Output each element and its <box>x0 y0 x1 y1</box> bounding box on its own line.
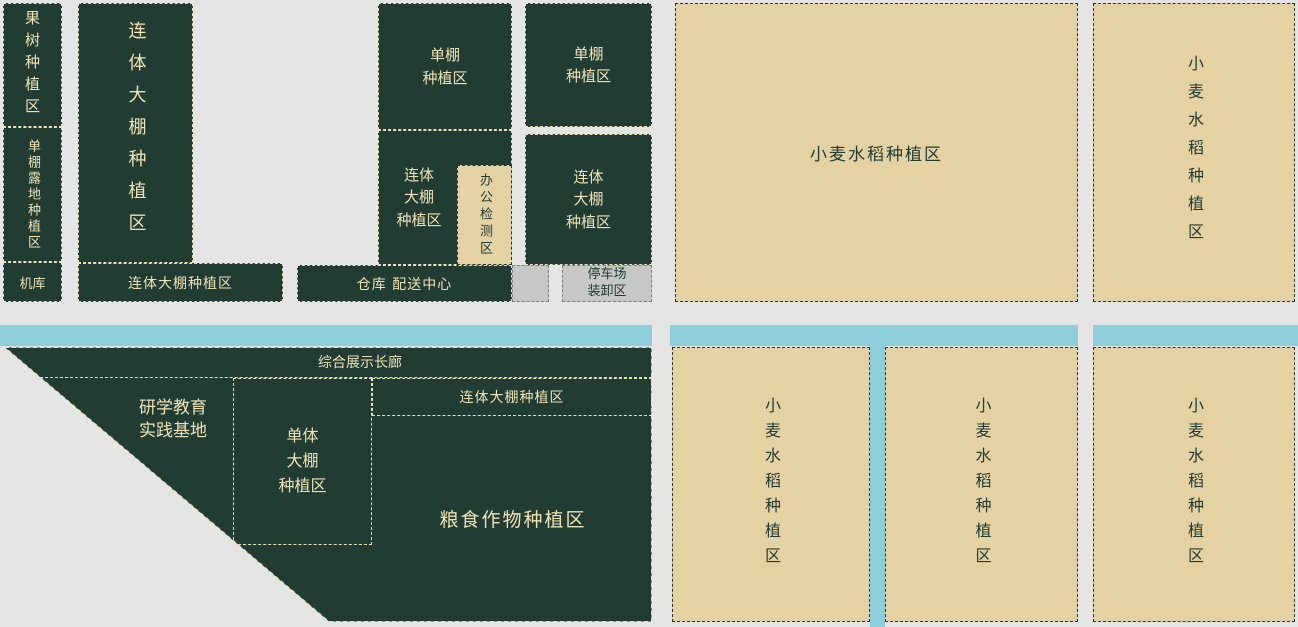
blue-road-strip-west <box>0 325 652 346</box>
zone-wheat-rice-south-1: 小麦水稻种植区 <box>672 347 870 622</box>
zone-single-greenhouse: 单体 大棚 种植区 <box>233 378 372 545</box>
zone-edu-practice-base: 研学教育 实践基地 <box>98 393 248 447</box>
zone-joint-greenhouse-south: 连体大棚种植区 <box>372 378 652 416</box>
site-plan: 果树种植区 单棚露地种植区 机库 连体大棚种植区 连体大棚种植区 单棚 种植区 … <box>0 0 1298 627</box>
zone-exhibition-corridor: 综合展示长廊 <box>288 352 432 372</box>
blue-road-strip-east <box>1093 325 1298 346</box>
zone-wheat-rice-south-2: 小麦水稻种植区 <box>885 347 1078 622</box>
zone-hangar: 机库 <box>3 262 62 302</box>
zone-orchard-planting: 果树种植区 <box>3 3 62 127</box>
zone-wheat-rice-northeast: 小麦水稻种植区 <box>1093 3 1295 302</box>
zone-grain-crops: 粮食作物种植区 <box>393 503 633 533</box>
zone-service-pad <box>512 265 549 302</box>
zone-joint-greenhouse-right: 连体 大棚 种植区 <box>525 134 652 265</box>
zone-single-shed-mid: 单棚 种植区 <box>378 3 512 130</box>
zone-joint-greenhouse-strip: 连体大棚种植区 <box>78 263 283 302</box>
zone-parking-unloading: 停车场 装卸区 <box>562 265 652 302</box>
blue-road-strip-middle <box>670 325 1078 346</box>
zone-single-shed-open-field: 单棚露地种植区 <box>3 127 62 262</box>
zone-wheat-rice-large: 小麦水稻种植区 <box>675 3 1078 302</box>
zone-office-inspection: 办公检测区 <box>457 165 512 265</box>
zone-joint-greenhouse-tall: 连体大棚种植区 <box>78 3 193 263</box>
zone-single-shed-right: 单棚 种植区 <box>525 3 652 127</box>
zone-warehouse-distribution-center: 仓库 配送中心 <box>297 265 512 302</box>
blue-road-strip-vertical <box>870 346 885 627</box>
zone-wheat-rice-south-3: 小麦水稻种植区 <box>1093 347 1295 622</box>
